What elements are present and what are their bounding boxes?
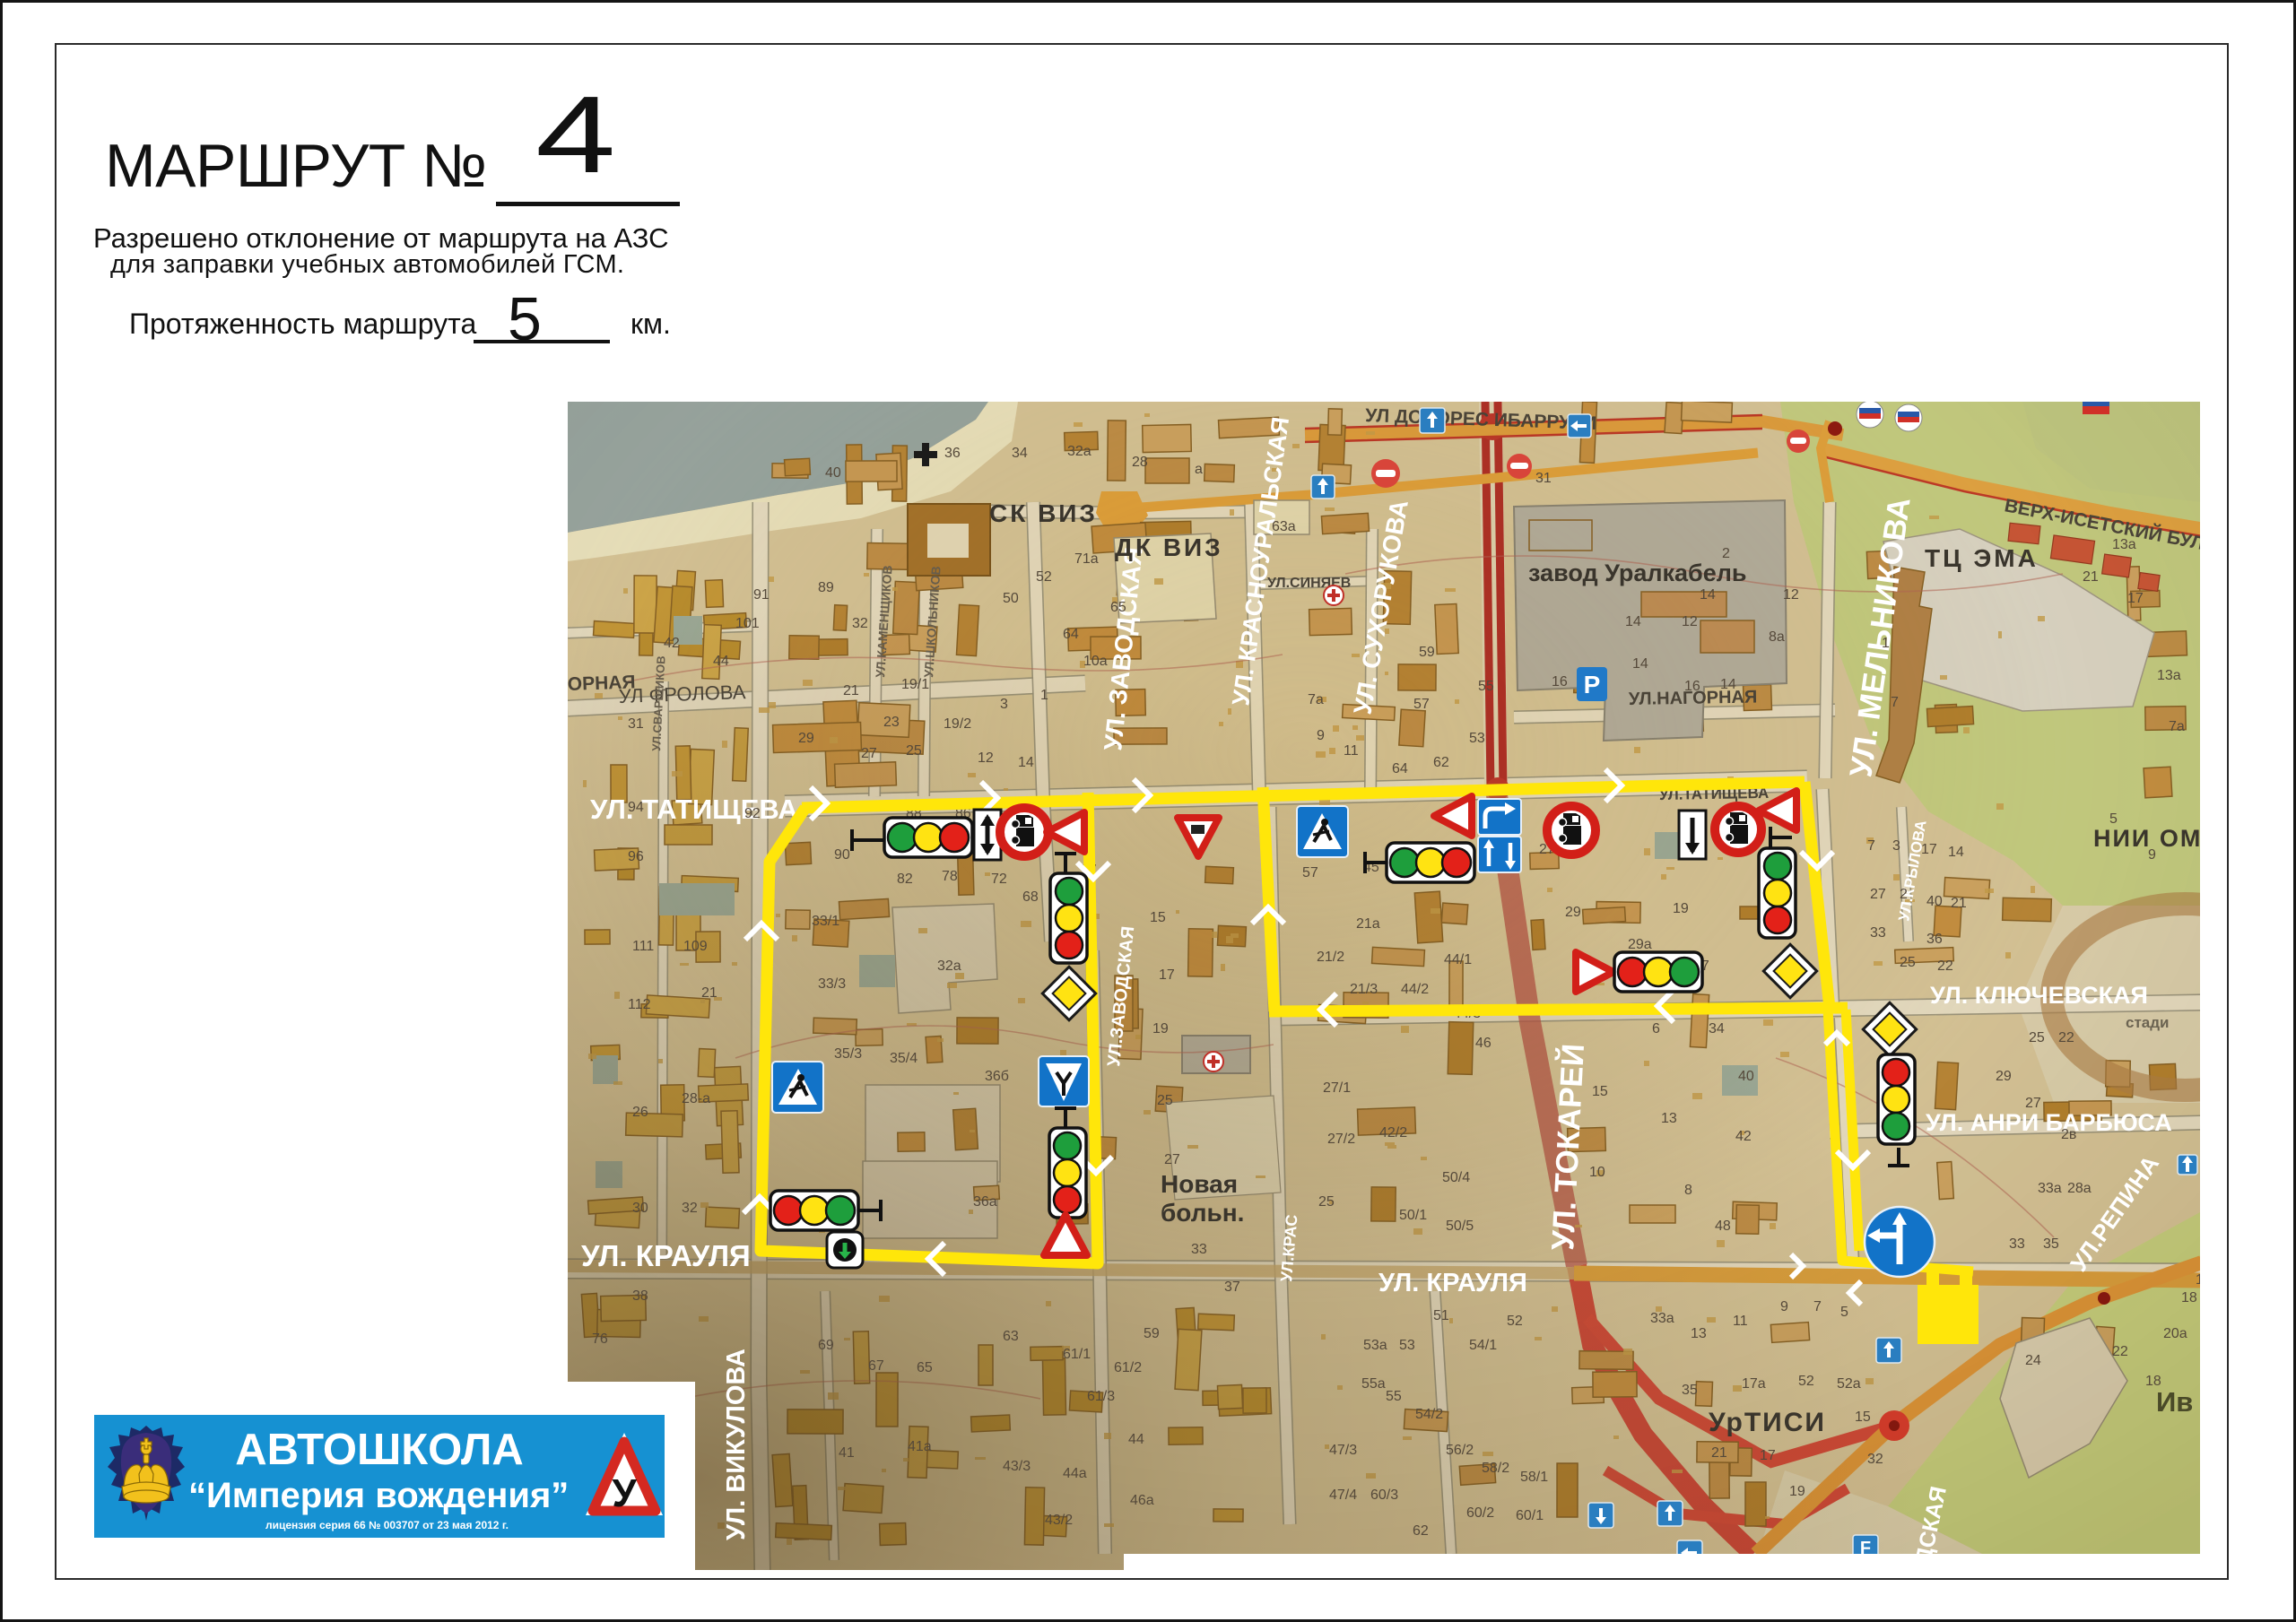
svg-text:63: 63: [1003, 1329, 1019, 1344]
svg-text:61/1: 61/1: [1063, 1347, 1091, 1362]
svg-text:19: 19: [1152, 1021, 1169, 1037]
svg-text:УЛ. ТАТИЩЕВА: УЛ. ТАТИЩЕВА: [590, 794, 798, 825]
svg-text:20а: 20а: [2163, 1326, 2187, 1341]
svg-text:Новая: Новая: [1161, 1170, 1238, 1198]
svg-text:21: 21: [1711, 1445, 1727, 1461]
svg-text:44: 44: [713, 654, 729, 669]
svg-text:33а: 33а: [2038, 1181, 2062, 1196]
svg-text:12: 12: [1783, 587, 1799, 603]
svg-text:УЛ. КЛЮЧЕВСКАЯ: УЛ. КЛЮЧЕВСКАЯ: [1930, 982, 2148, 1009]
svg-text:21/2: 21/2: [1317, 950, 1344, 965]
svg-text:44/2: 44/2: [1401, 982, 1429, 997]
svg-text:34: 34: [1709, 1021, 1725, 1037]
svg-text:30: 30: [632, 1201, 648, 1216]
svg-text:завод Уралкабель: завод Уралкабель: [1528, 559, 1747, 586]
svg-text:101: 101: [735, 616, 760, 631]
svg-text:7а: 7а: [2169, 719, 2185, 734]
svg-text:31: 31: [628, 716, 644, 732]
svg-text:13: 13: [1661, 1111, 1677, 1126]
svg-text:31: 31: [1535, 471, 1552, 486]
svg-text:42/2: 42/2: [1379, 1125, 1407, 1141]
svg-text:1: 1: [1040, 688, 1048, 703]
svg-text:29: 29: [798, 731, 814, 746]
svg-text:48: 48: [1715, 1219, 1731, 1234]
svg-text:F: F: [1860, 1539, 1871, 1558]
svg-text:6: 6: [1652, 1021, 1660, 1037]
svg-text:90: 90: [834, 847, 850, 863]
svg-text:1: 1: [1882, 636, 1890, 651]
svg-text:17: 17: [1760, 1448, 1776, 1463]
svg-text:27: 27: [1870, 887, 1886, 902]
svg-text:27/1: 27/1: [1323, 1080, 1351, 1096]
svg-text:9: 9: [2148, 847, 2156, 863]
svg-text:42: 42: [1735, 1129, 1752, 1144]
svg-text:72: 72: [991, 872, 1007, 887]
svg-text:47/3: 47/3: [1329, 1443, 1357, 1458]
svg-text:26: 26: [632, 1105, 648, 1120]
svg-text:52: 52: [1036, 569, 1052, 585]
svg-text:33: 33: [1870, 925, 1886, 941]
svg-text:28-а: 28-а: [682, 1091, 710, 1106]
svg-text:38: 38: [632, 1288, 648, 1304]
svg-text:У: У: [612, 1471, 637, 1515]
svg-text:УЛ. ВИКУЛОВА: УЛ. ВИКУЛОВА: [722, 1349, 751, 1540]
svg-text:P: P: [1584, 671, 1601, 698]
svg-text:42: 42: [664, 636, 680, 651]
svg-text:12: 12: [1682, 614, 1698, 629]
svg-text:19: 19: [1789, 1484, 1805, 1499]
svg-text:35/4: 35/4: [890, 1051, 918, 1066]
svg-text:УЛ. АНРИ БАРБЮСА: УЛ. АНРИ БАРБЮСА: [1926, 1109, 2172, 1136]
svg-text:23: 23: [883, 715, 900, 730]
svg-text:55а: 55а: [1361, 1376, 1386, 1392]
svg-text:51: 51: [1433, 1308, 1449, 1323]
svg-text:11: 11: [1344, 743, 1359, 759]
svg-text:29: 29: [1565, 905, 1581, 920]
svg-text:57: 57: [1413, 697, 1430, 712]
svg-text:14: 14: [1625, 614, 1641, 629]
svg-text:19/1: 19/1: [901, 677, 929, 692]
svg-text:54/2: 54/2: [1415, 1407, 1443, 1422]
svg-text:25: 25: [906, 743, 922, 759]
svg-text:НИИ ОММ: НИИ ОММ: [2093, 825, 2224, 852]
svg-text:62: 62: [1433, 755, 1449, 770]
svg-text:9: 9: [1317, 728, 1325, 743]
svg-text:22: 22: [1937, 958, 1953, 974]
svg-text:2: 2: [1900, 887, 1908, 902]
svg-text:65: 65: [917, 1360, 933, 1375]
svg-text:91: 91: [753, 587, 770, 603]
svg-text:60/1: 60/1: [1516, 1508, 1544, 1523]
svg-text:33а: 33а: [1650, 1311, 1674, 1326]
svg-text:34: 34: [1012, 446, 1028, 461]
svg-text:2: 2: [1722, 546, 1730, 561]
svg-text:7а: 7а: [1308, 692, 1324, 707]
svg-text:27: 27: [1164, 1152, 1180, 1167]
svg-text:111: 111: [632, 939, 654, 954]
svg-text:41: 41: [839, 1445, 855, 1461]
svg-text:16: 16: [1552, 674, 1568, 690]
svg-text:64: 64: [1063, 627, 1079, 642]
svg-text:44а: 44а: [1063, 1466, 1087, 1481]
svg-text:СК ВИЗ: СК ВИЗ: [989, 499, 1098, 527]
svg-text:60/3: 60/3: [1370, 1488, 1398, 1503]
svg-text:71а: 71а: [1074, 551, 1099, 567]
svg-text:36: 36: [944, 446, 961, 461]
svg-text:36б: 36б: [985, 1069, 1009, 1084]
svg-text:61/2: 61/2: [1114, 1360, 1142, 1375]
svg-text:18: 18: [2181, 1290, 2197, 1305]
svg-text:13а: 13а: [2157, 668, 2181, 683]
svg-text:65: 65: [1110, 600, 1126, 615]
svg-text:60/2: 60/2: [1466, 1505, 1494, 1521]
svg-text:3: 3: [1892, 838, 1900, 854]
svg-text:50/4: 50/4: [1442, 1170, 1470, 1185]
svg-text:35: 35: [1682, 1383, 1698, 1398]
svg-text:19/2: 19/2: [944, 716, 971, 732]
svg-text:50: 50: [1003, 591, 1019, 606]
svg-text:УЛ ФРОЛОВА: УЛ ФРОЛОВА: [618, 681, 746, 707]
svg-text:43/2: 43/2: [1045, 1513, 1073, 1528]
svg-text:14: 14: [2196, 1272, 2212, 1288]
svg-text:36а: 36а: [973, 1194, 997, 1210]
svg-text:82: 82: [897, 872, 913, 887]
svg-text:33/3: 33/3: [818, 976, 846, 992]
svg-text:7: 7: [1813, 1299, 1822, 1314]
svg-text:14: 14: [1700, 587, 1716, 603]
svg-text:УрТИСИ: УрТИСИ: [1709, 1408, 1826, 1437]
svg-text:61/3: 61/3: [1087, 1389, 1115, 1404]
svg-text:25: 25: [1900, 955, 1916, 970]
svg-text:37: 37: [1224, 1279, 1240, 1295]
svg-text:21а: 21а: [1356, 916, 1380, 932]
svg-text:109: 109: [683, 939, 708, 954]
svg-text:13: 13: [1691, 1326, 1707, 1341]
svg-text:Ив: Ив: [2156, 1386, 2193, 1418]
svg-text:22: 22: [2058, 1030, 2074, 1045]
svg-text:11: 11: [1733, 1314, 1748, 1329]
svg-text:32: 32: [682, 1201, 698, 1216]
svg-text:27: 27: [2025, 1096, 2041, 1111]
svg-text:43/3: 43/3: [1003, 1459, 1031, 1474]
svg-text:52: 52: [1507, 1314, 1523, 1329]
svg-text:58/1: 58/1: [1520, 1470, 1548, 1485]
svg-text:16: 16: [1684, 679, 1700, 694]
svg-text:ДК ВИЗ: ДК ВИЗ: [1115, 533, 1223, 561]
svg-text:а: а: [1195, 462, 1203, 477]
svg-text:29а: 29а: [1628, 937, 1652, 952]
svg-text:28а: 28а: [2067, 1181, 2092, 1196]
svg-text:53а: 53а: [1363, 1338, 1387, 1353]
svg-text:17а: 17а: [1742, 1376, 1766, 1392]
svg-text:29: 29: [1996, 1069, 2012, 1084]
svg-text:18: 18: [2145, 1374, 2161, 1389]
svg-text:32а: 32а: [1067, 444, 1091, 459]
svg-text:21: 21: [2083, 569, 2099, 585]
svg-text:53: 53: [1399, 1338, 1415, 1353]
svg-text:44: 44: [1128, 1432, 1144, 1447]
svg-text:32а: 32а: [937, 958, 961, 974]
svg-text:54/1: 54/1: [1469, 1338, 1497, 1353]
svg-text:5: 5: [2109, 811, 2118, 827]
svg-text:94: 94: [628, 800, 644, 815]
svg-text:40: 40: [825, 465, 841, 481]
svg-text:92: 92: [744, 806, 761, 821]
svg-text:13а: 13а: [2112, 537, 2136, 552]
svg-text:15: 15: [1150, 910, 1166, 925]
svg-text:76: 76: [592, 1331, 608, 1347]
svg-text:32: 32: [1867, 1452, 1883, 1467]
svg-text:46: 46: [1475, 1036, 1492, 1051]
svg-text:33: 33: [1191, 1242, 1207, 1257]
svg-text:53: 53: [1469, 731, 1485, 746]
svg-text:33: 33: [2009, 1236, 2025, 1252]
svg-text:55: 55: [1478, 679, 1494, 694]
svg-text:50/5: 50/5: [1446, 1219, 1474, 1234]
svg-text:59: 59: [1144, 1326, 1160, 1341]
svg-text:стади: стади: [2126, 1014, 2169, 1031]
svg-text:112: 112: [628, 997, 651, 1012]
svg-text:56/2: 56/2: [1446, 1443, 1474, 1458]
svg-text:28: 28: [1132, 455, 1148, 470]
svg-text:41а: 41а: [908, 1439, 932, 1454]
svg-text:2в: 2в: [2061, 1127, 2076, 1142]
svg-text:25: 25: [1157, 1093, 1173, 1108]
svg-text:12: 12: [978, 750, 994, 766]
svg-text:67: 67: [868, 1358, 884, 1374]
svg-text:17: 17: [1921, 842, 1937, 857]
svg-text:63а: 63а: [1272, 519, 1296, 534]
svg-text:10а: 10а: [1083, 654, 1108, 669]
svg-text:64: 64: [1392, 761, 1408, 776]
svg-text:10: 10: [1589, 1165, 1605, 1180]
svg-text:25: 25: [2029, 1030, 2045, 1045]
svg-text:52а: 52а: [1837, 1376, 1861, 1392]
svg-text:21: 21: [843, 683, 859, 698]
svg-text:55: 55: [1386, 1389, 1402, 1404]
svg-text:14: 14: [1018, 755, 1034, 770]
svg-text:19: 19: [1673, 901, 1689, 916]
svg-text:69: 69: [818, 1338, 834, 1353]
svg-text:36: 36: [1926, 932, 1943, 947]
svg-text:21: 21: [1951, 896, 1967, 911]
svg-text:89: 89: [818, 580, 834, 595]
svg-text:ОРНАЯ: ОРНАЯ: [567, 672, 636, 695]
svg-text:15: 15: [1855, 1409, 1871, 1425]
svg-text:40: 40: [1926, 894, 1943, 909]
svg-text:68: 68: [1022, 889, 1039, 905]
svg-text:57: 57: [1302, 865, 1318, 880]
svg-text:40: 40: [1738, 1069, 1754, 1084]
svg-text:46а: 46а: [1130, 1493, 1154, 1508]
svg-text:9: 9: [1780, 1299, 1788, 1314]
svg-text:78: 78: [942, 869, 958, 884]
svg-text:33/1: 33/1: [812, 914, 839, 929]
svg-text:5: 5: [1840, 1305, 1848, 1320]
svg-text:58/2: 58/2: [1482, 1461, 1509, 1476]
svg-text:27/2: 27/2: [1327, 1132, 1355, 1147]
svg-text:47/4: 47/4: [1329, 1488, 1357, 1503]
svg-text:32: 32: [852, 616, 868, 631]
svg-text:3: 3: [1000, 697, 1008, 712]
svg-text:17: 17: [1159, 967, 1175, 983]
svg-text:больн.: больн.: [1161, 1199, 1244, 1227]
svg-text:62: 62: [1413, 1523, 1429, 1539]
svg-text:14: 14: [1632, 656, 1648, 672]
svg-text:52: 52: [1798, 1374, 1814, 1389]
svg-text:ТЦ ЭМА: ТЦ ЭМА: [1925, 544, 2039, 572]
svg-text:17: 17: [2127, 591, 2144, 606]
svg-text:8: 8: [1684, 1183, 1692, 1198]
svg-text:50/1: 50/1: [1399, 1208, 1427, 1223]
svg-text:8а: 8а: [1769, 629, 1785, 645]
svg-text:44/1: 44/1: [1444, 952, 1472, 967]
svg-text:14: 14: [1948, 845, 1964, 860]
svg-text:14: 14: [1720, 677, 1736, 692]
svg-text:27: 27: [861, 746, 877, 761]
svg-text:22: 22: [2112, 1344, 2128, 1359]
svg-text:96: 96: [628, 849, 644, 864]
svg-text:24: 24: [2025, 1353, 2041, 1368]
svg-text:25: 25: [1318, 1194, 1335, 1210]
svg-text:7: 7: [1891, 695, 1899, 710]
svg-text:21/3: 21/3: [1350, 982, 1378, 997]
svg-text:15: 15: [1592, 1084, 1608, 1099]
svg-text:УЛ. КРАУЛЯ: УЛ. КРАУЛЯ: [1378, 1269, 1527, 1297]
svg-text:УЛ. КРАУЛЯ: УЛ. КРАУЛЯ: [581, 1239, 751, 1272]
svg-text:7: 7: [1867, 838, 1875, 854]
svg-text:35/3: 35/3: [834, 1046, 862, 1062]
svg-text:59: 59: [1419, 645, 1435, 660]
svg-text:35: 35: [2043, 1236, 2059, 1252]
svg-text:21: 21: [701, 985, 717, 1001]
